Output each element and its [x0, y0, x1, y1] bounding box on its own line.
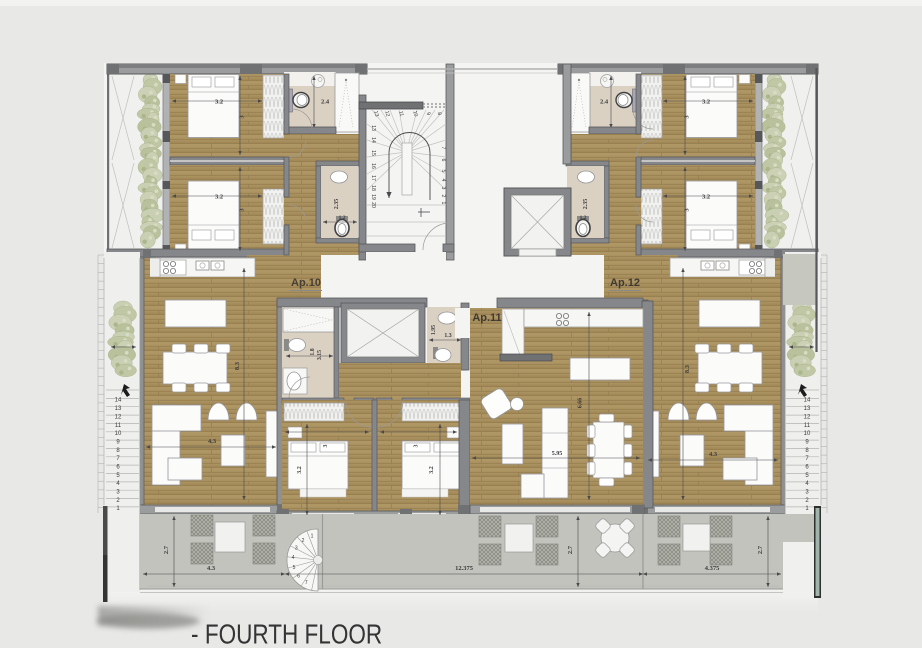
svg-text:2.7: 2.7 — [757, 545, 764, 554]
svg-text:2: 2 — [440, 195, 446, 198]
svg-text:13: 13 — [370, 125, 376, 131]
svg-text:8.3: 8.3 — [684, 364, 691, 373]
svg-text:2.4: 2.4 — [321, 99, 330, 106]
svg-text:1.3: 1.3 — [444, 333, 451, 339]
svg-text:4.3: 4.3 — [709, 451, 718, 458]
svg-text:3.15: 3.15 — [317, 350, 323, 360]
svg-text:3.2: 3.2 — [702, 194, 710, 201]
svg-text:3.2: 3.2 — [702, 99, 710, 106]
svg-text:6: 6 — [297, 574, 300, 580]
svg-text:7: 7 — [440, 147, 446, 150]
svg-text:3: 3 — [323, 445, 329, 448]
svg-text:1: 1 — [440, 202, 446, 205]
svg-text:2.35: 2.35 — [583, 199, 589, 210]
svg-text:1: 1 — [311, 534, 314, 540]
svg-text:12: 12 — [804, 414, 811, 420]
svg-text:4.3: 4.3 — [208, 438, 217, 445]
svg-text:Ap.12: Ap.12 — [610, 277, 640, 289]
svg-text:11: 11 — [115, 423, 122, 429]
svg-text:13: 13 — [804, 406, 811, 412]
svg-text:15: 15 — [370, 150, 376, 156]
svg-text:2.4: 2.4 — [600, 99, 609, 106]
svg-text:3: 3 — [440, 187, 446, 190]
svg-text:3.2: 3.2 — [215, 194, 223, 201]
svg-text:14: 14 — [115, 398, 122, 404]
svg-text:5: 5 — [440, 170, 446, 173]
svg-text:12: 12 — [115, 414, 122, 420]
svg-text:1.8: 1.8 — [310, 348, 316, 355]
svg-text:3.2: 3.2 — [297, 466, 303, 474]
svg-text:13: 13 — [115, 406, 122, 412]
svg-text:3: 3 — [295, 546, 298, 552]
svg-text:20: 20 — [370, 202, 376, 208]
svg-text:17: 17 — [370, 175, 376, 181]
svg-text:16: 16 — [370, 163, 376, 169]
svg-text:14: 14 — [370, 137, 376, 143]
svg-text:10: 10 — [115, 431, 122, 437]
svg-text:7: 7 — [305, 580, 308, 586]
svg-text:2.7: 2.7 — [567, 545, 574, 554]
svg-text:4.3: 4.3 — [207, 565, 216, 572]
svg-text:3: 3 — [414, 445, 420, 448]
svg-text:19: 19 — [370, 194, 376, 200]
svg-text:6.66: 6.66 — [578, 398, 584, 409]
svg-text:Ap.11: Ap.11 — [472, 312, 501, 324]
svg-text:2: 2 — [302, 538, 305, 544]
svg-text:2.7: 2.7 — [163, 545, 170, 554]
svg-text:18: 18 — [370, 185, 376, 191]
svg-text:11: 11 — [804, 423, 811, 429]
svg-text:14: 14 — [804, 398, 811, 404]
svg-text:3.2: 3.2 — [215, 99, 223, 106]
svg-text:- FOURTH FLOOR: - FOURTH FLOOR — [191, 619, 382, 648]
svg-text:5.95: 5.95 — [552, 451, 563, 457]
svg-text:1.95: 1.95 — [431, 325, 437, 335]
svg-text:2.35: 2.35 — [334, 199, 340, 210]
svg-text:1.2: 1.2 — [339, 215, 346, 221]
svg-text:3.2: 3.2 — [429, 466, 435, 474]
svg-text:1.2: 1.2 — [580, 215, 587, 221]
svg-text:4: 4 — [292, 555, 295, 561]
svg-text:4: 4 — [440, 179, 446, 182]
svg-text:10: 10 — [804, 431, 811, 437]
svg-text:6: 6 — [440, 159, 446, 162]
svg-text:Ap.10: Ap.10 — [291, 277, 321, 289]
svg-text:4.375: 4.375 — [705, 565, 720, 572]
svg-text:8.3: 8.3 — [234, 361, 241, 370]
svg-text:12.375: 12.375 — [455, 565, 474, 572]
svg-text:5: 5 — [293, 565, 296, 571]
